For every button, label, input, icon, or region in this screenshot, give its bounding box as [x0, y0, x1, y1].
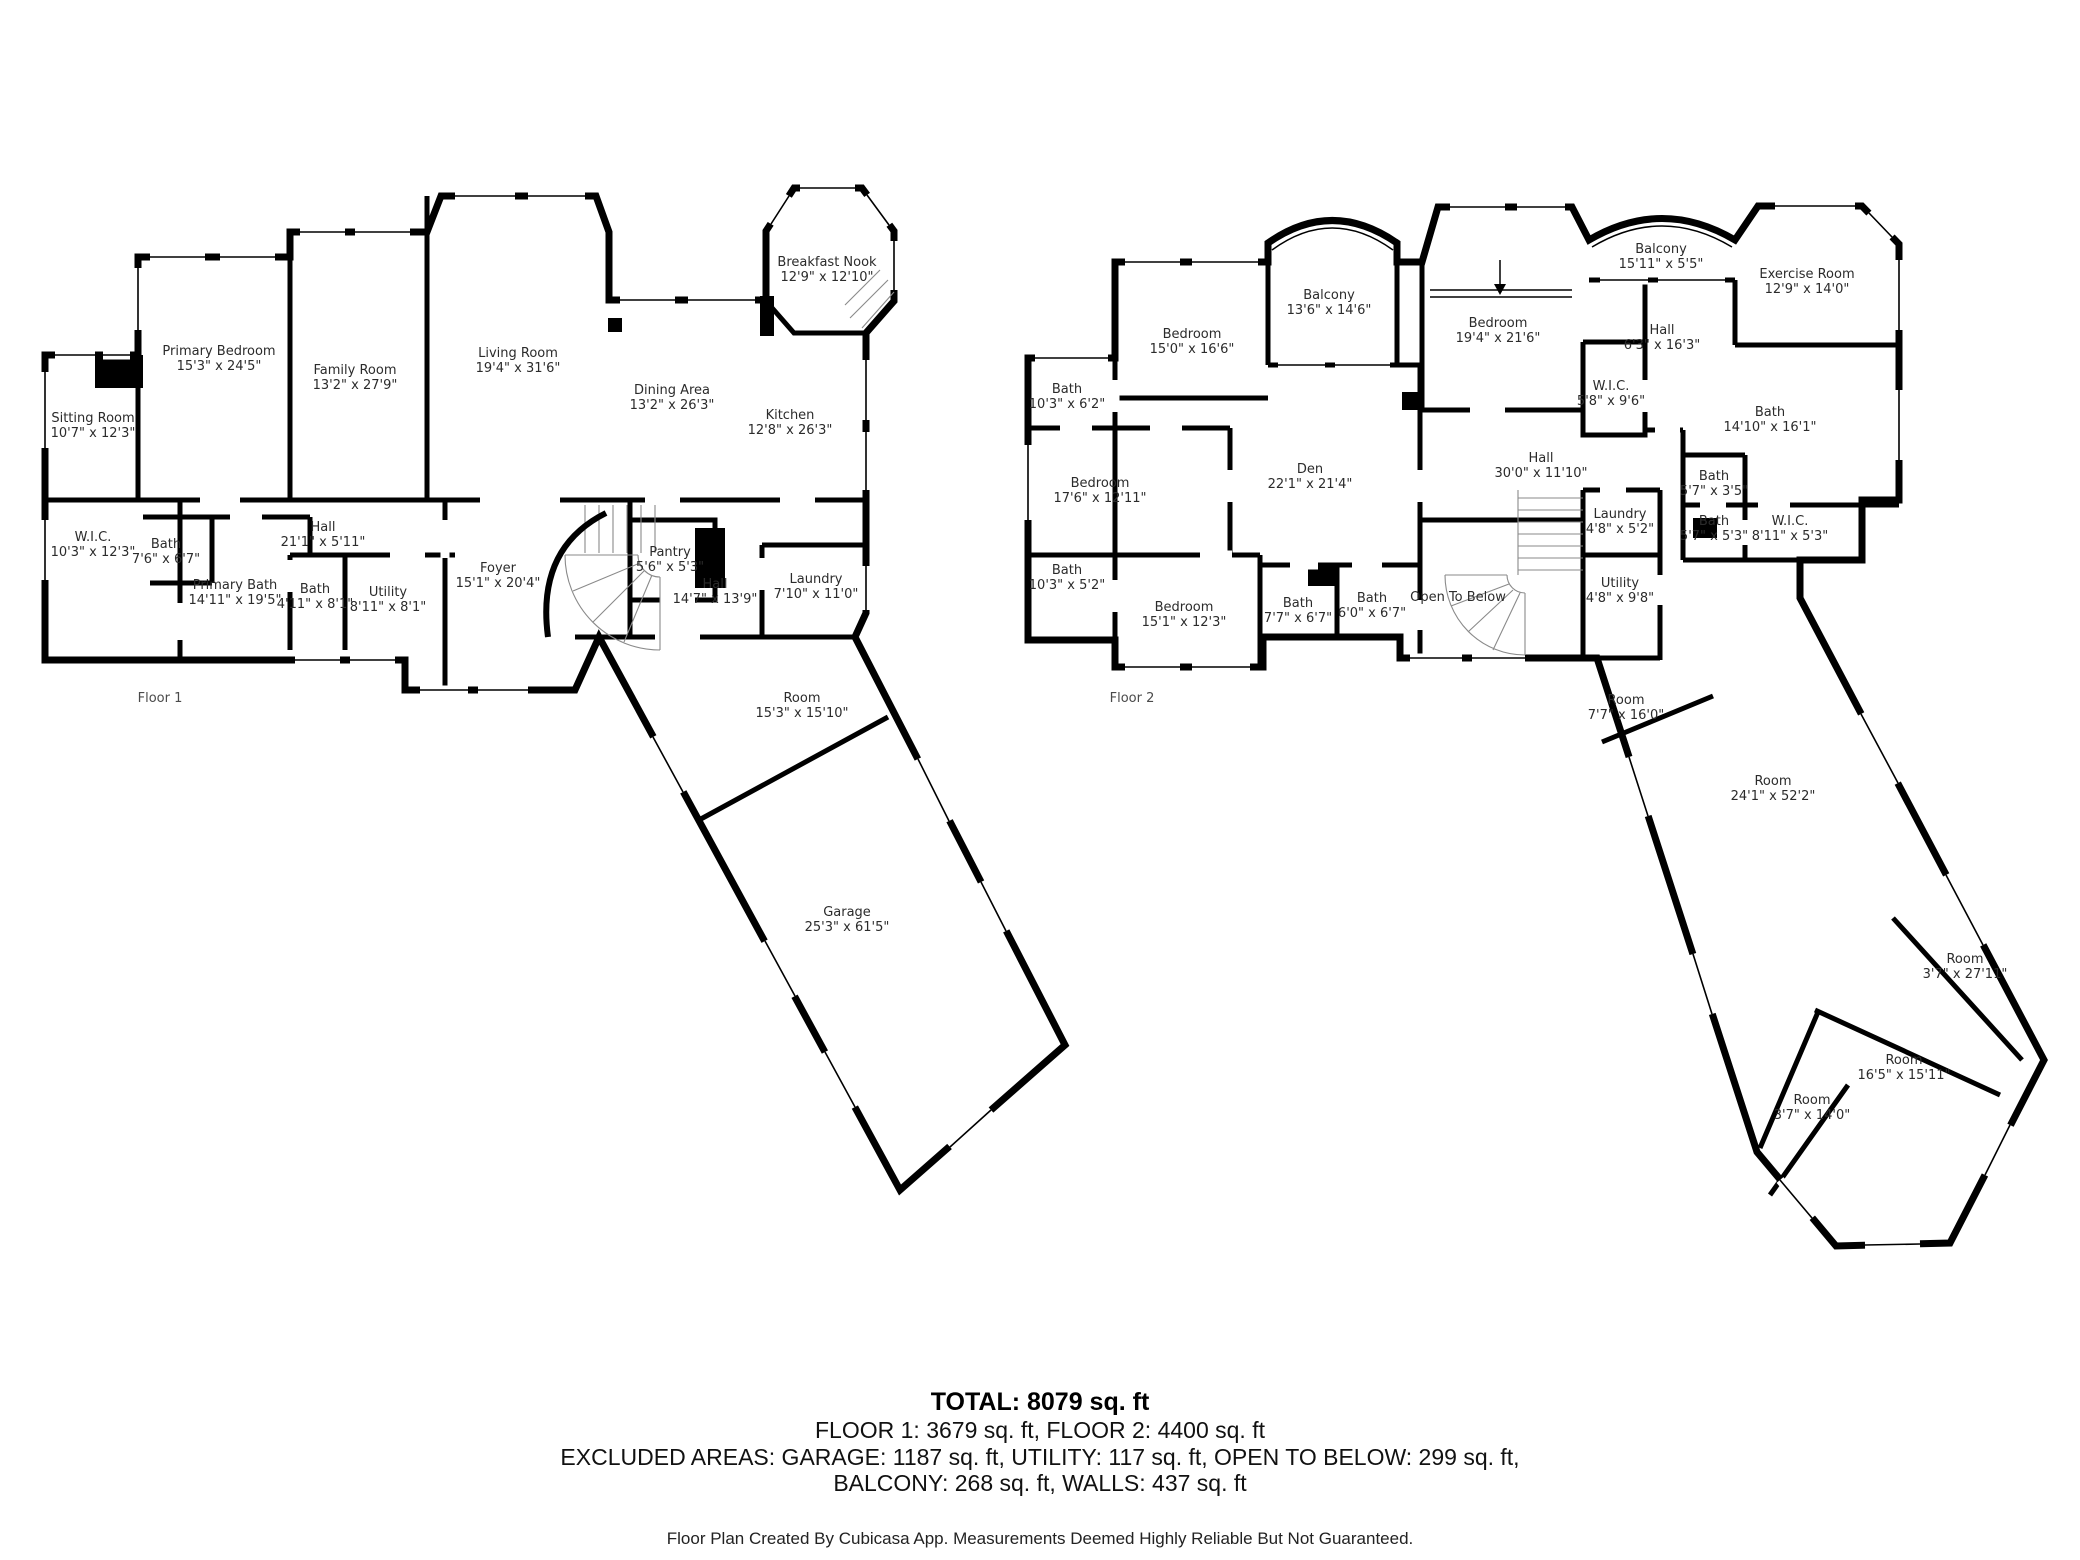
room-dims: 15'11" x 5'5": [1619, 257, 1704, 272]
room-dims: 16'5" x 15'11": [1858, 1068, 1951, 1083]
room-dims: 19'4" x 21'6": [1456, 331, 1541, 346]
room-name: Room: [783, 691, 820, 706]
room-name: Primary Bedroom: [162, 344, 275, 359]
room-name: Room: [1946, 952, 1983, 967]
room-dims: 4'8" x 5'2": [1586, 522, 1654, 537]
room-dims: 4'11" x 8'1": [277, 597, 353, 612]
excluded-areas-line1: EXCLUDED AREAS: GARAGE: 1187 sq. ft, UTI…: [560, 1444, 1519, 1470]
room-dims: 15'3" x 24'5": [177, 359, 262, 374]
room-name: Utility: [1601, 576, 1640, 591]
room-name: Hall: [1529, 451, 1554, 466]
room-dims: 25'3" x 61'5": [805, 920, 890, 935]
room-dims: 10'3" x 6'2": [1029, 397, 1105, 412]
room-name: Laundry: [1594, 507, 1647, 522]
room-dims: 12'9" x 12'10": [781, 270, 874, 285]
room-dims: 22'1" x 21'4": [1268, 477, 1353, 492]
room-name: Bath: [1052, 382, 1082, 397]
room-name: Room: [1793, 1093, 1830, 1108]
room-dims: 13'2" x 26'3": [630, 398, 715, 413]
room-dims: 4'8" x 9'8": [1586, 591, 1654, 606]
room-name: Room: [1754, 774, 1791, 789]
excluded-areas-line2: BALCONY: 268 sq. ft, WALLS: 437 sq. ft: [833, 1470, 1247, 1496]
room-dims: 5'7" x 3'5": [1680, 484, 1748, 499]
room-name: Laundry: [790, 572, 843, 587]
room-name: Hall: [1650, 323, 1675, 338]
room-name: Bath: [1699, 469, 1729, 484]
floorplan-drawing: Sitting Room 10'7" x 12'3" Primary Bedro…: [0, 0, 2080, 1560]
room-name: Bath: [1699, 514, 1729, 529]
floor1-label: Floor 1: [138, 691, 183, 706]
room-dims: 15'1" x 12'3": [1142, 615, 1227, 630]
floorplan-page: Sitting Room 10'7" x 12'3" Primary Bedro…: [0, 0, 2080, 1560]
room-dims: 8'11" x 8'1": [350, 600, 426, 615]
room-dims: 10'3" x 12'3": [51, 545, 136, 560]
room-name: Den: [1297, 462, 1323, 477]
floor-areas: FLOOR 1: 3679 sq. ft, FLOOR 2: 4400 sq. …: [815, 1417, 1266, 1443]
room-name: W.I.C.: [1772, 514, 1809, 529]
room-dims: 14'10" x 16'1": [1724, 420, 1817, 435]
room-name: Room: [1885, 1053, 1922, 1068]
room-dims: 12'8" x 26'3": [748, 423, 833, 438]
room-dims: 14'11" x 19'5": [189, 593, 282, 608]
room-dims: 10'7" x 12'3": [51, 426, 136, 441]
room-dims: 13'2" x 27'9": [313, 378, 398, 393]
room-name: Kitchen: [766, 408, 815, 423]
room-name: Bath: [1357, 591, 1387, 606]
room-name: Balcony: [1303, 288, 1355, 303]
room-dims: 7'7" x 6'7": [1264, 611, 1332, 626]
total-area: TOTAL: 8079 sq. ft: [931, 1388, 1150, 1416]
room-name: Foyer: [480, 561, 517, 576]
room-name: Hall: [311, 520, 336, 535]
room-name: Exercise Room: [1759, 267, 1854, 282]
floor2-plan: [1028, 206, 2044, 1246]
room-name: Open To Below: [1410, 590, 1506, 605]
room-name: Bath: [300, 582, 330, 597]
room-dims: 17'6" x 12'11": [1054, 491, 1147, 506]
room-name: Utility: [369, 585, 408, 600]
room-dims: 6'0" x 6'7": [1338, 606, 1406, 621]
room-dims: 7'7" x 16'0": [1588, 708, 1664, 723]
room-dims: 24'1" x 52'2": [1731, 789, 1816, 804]
room-name: Dining Area: [634, 383, 710, 398]
room-dims: 12'9" x 14'0": [1765, 282, 1850, 297]
area-summary: TOTAL: 8079 sq. ft FLOOR 1: 3679 sq. ft,…: [560, 1388, 1519, 1548]
room-dims: 30'0" x 11'10": [1495, 466, 1588, 481]
room-name: Family Room: [314, 363, 397, 378]
room-dims: 15'1" x 20'4": [456, 576, 541, 591]
room-dims: 15'0" x 16'6": [1150, 342, 1235, 357]
footer-disclaimer: Floor Plan Created By Cubicasa App. Meas…: [667, 1529, 1414, 1548]
floor2-exterior-walls: [1028, 206, 2044, 1246]
room-name: Bath: [151, 537, 181, 552]
room-dims: 5'6" x 5'3": [636, 560, 704, 575]
room-dims: 7'6" x 6'7": [132, 552, 200, 567]
room-dims: 14'7" x 13'9": [673, 592, 758, 607]
floor1-plan: [45, 188, 1065, 1190]
room-name: Bath: [1283, 596, 1313, 611]
room-name: Breakfast Nook: [777, 255, 877, 270]
room-name: Bath: [1052, 563, 1082, 578]
floor2-label: Floor 2: [1110, 691, 1155, 706]
room-dims: 21'1" x 5'11": [281, 535, 366, 550]
room-name: Bedroom: [1163, 327, 1222, 342]
room-dims: 5'8" x 9'6": [1577, 394, 1645, 409]
room-dims: 3'7" x 27'11": [1923, 967, 2008, 982]
room-name: Room: [1607, 693, 1644, 708]
room-dims: 15'3" x 15'10": [756, 706, 849, 721]
room-name: W.I.C.: [75, 530, 112, 545]
floor1-exterior-walls: [45, 188, 1065, 1190]
room-name: Bedroom: [1155, 600, 1214, 615]
room-dims: 10'3" x 5'2": [1029, 578, 1105, 593]
room-name: Bedroom: [1469, 316, 1528, 331]
room-name: Balcony: [1635, 242, 1687, 257]
room-dims: 3'7" x 14'0": [1774, 1108, 1850, 1123]
room-name: Bedroom: [1071, 476, 1130, 491]
room-dims: 13'6" x 14'6": [1287, 303, 1372, 318]
room-name: Pantry: [649, 545, 691, 560]
room-dims: 8'11" x 5'3": [1752, 529, 1828, 544]
room-name: Primary Bath: [193, 578, 278, 593]
room-dims: 6'3" x 16'3": [1624, 338, 1700, 353]
room-name: Sitting Room: [51, 411, 134, 426]
room-dims: 7'10" x 11'0": [774, 587, 859, 602]
room-name: W.I.C.: [1593, 379, 1630, 394]
room-name: Hall: [703, 577, 728, 592]
room-dims: 5'7" x 5'3": [1680, 529, 1748, 544]
room-dims: 19'4" x 31'6": [476, 361, 561, 376]
room-name: Bath: [1755, 405, 1785, 420]
room-name: Living Room: [478, 346, 558, 361]
room-name: Garage: [823, 905, 871, 920]
